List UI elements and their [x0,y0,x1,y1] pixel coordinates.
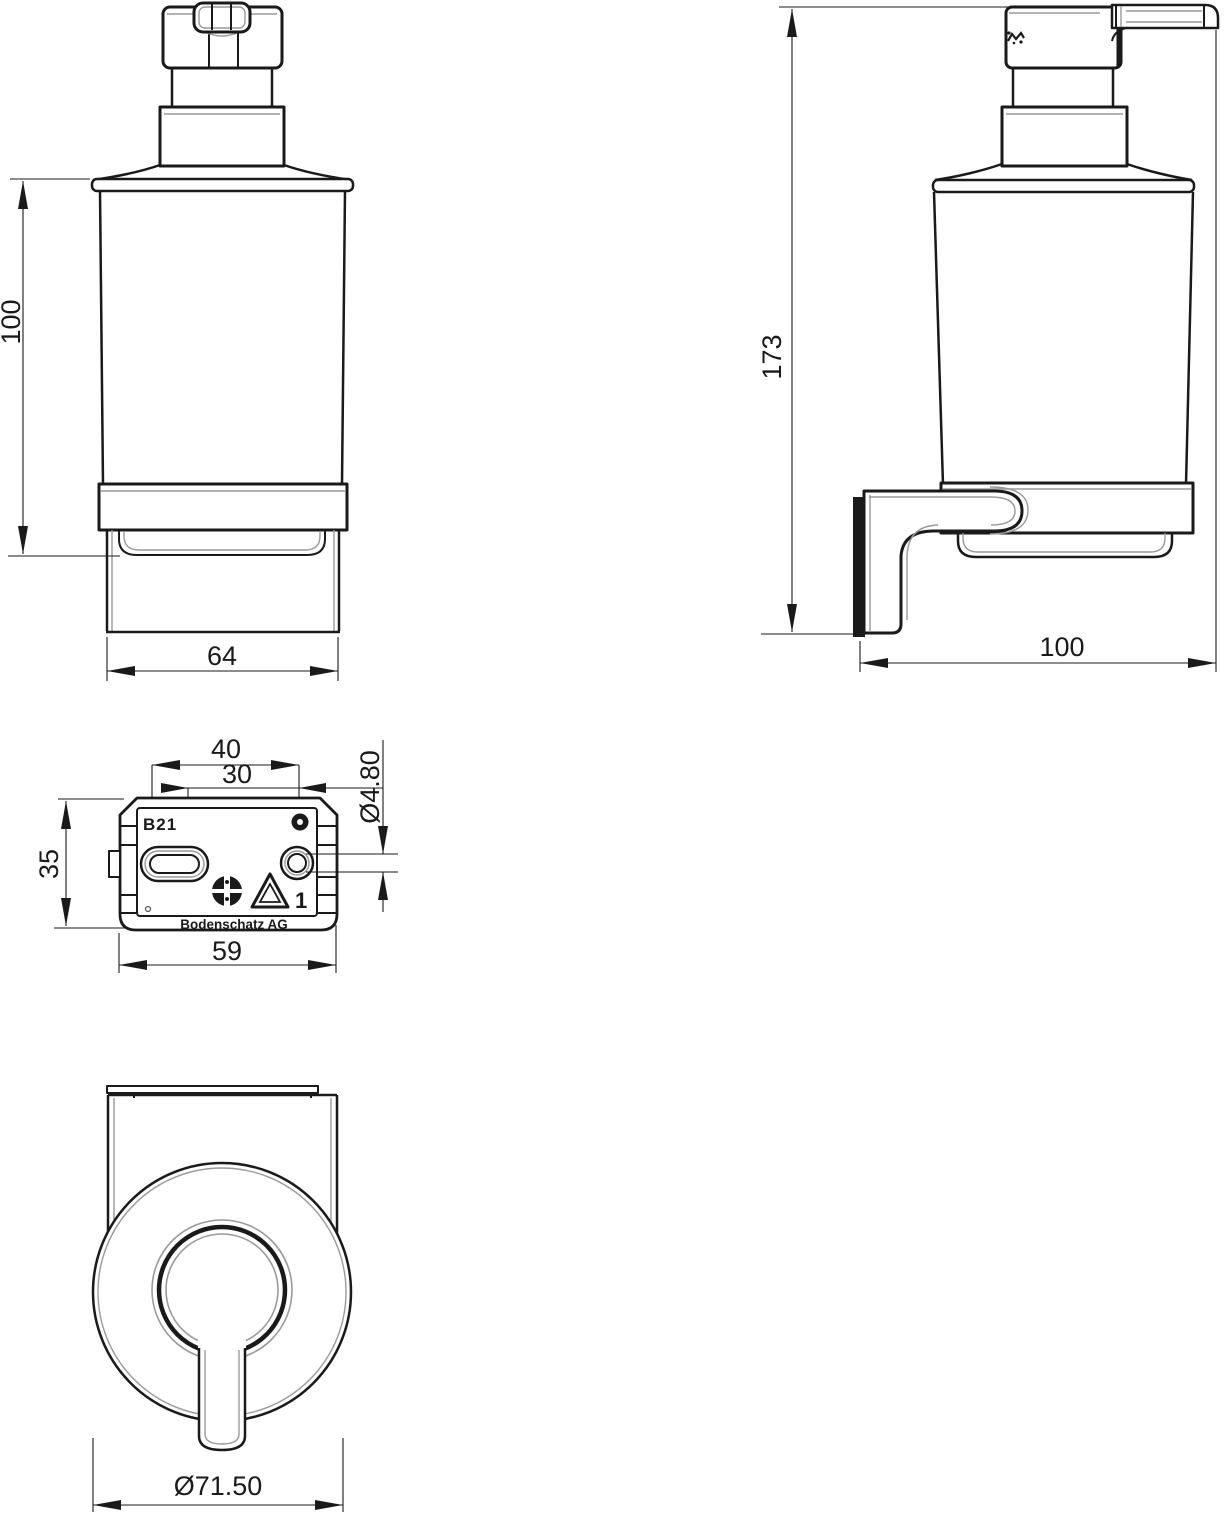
cert-mark-icon [212,876,242,906]
bracket-hole-diameter-label: Ø4.80 [355,750,385,824]
bracket-left-tab [109,851,120,877]
bottom-diameter-dim-label: Ø71.50 [174,1471,263,1501]
side-depth-dim-label: 100 [1039,632,1084,662]
bracket-brand-label: Bodenschatz AG [180,917,288,932]
front-height-dim-label: 100 [0,299,26,344]
bracket-model-label: B21 [143,815,177,834]
bracket-material-label: 1 [295,888,307,913]
technical-drawing-page: 100 64 [0,0,1224,1517]
front-pump-collar [160,107,284,166]
front-pump [160,3,284,166]
front-pump-neck [172,68,272,107]
side-height-dim-label: 173 [757,334,787,379]
mounting-hole [281,847,313,879]
front-spout-nozzle [194,3,250,32]
bracket-height-dim-label: 35 [34,849,64,879]
side-pump-neck [1013,68,1113,107]
mounting-slot [141,847,208,881]
bracket-slot-spacing-label: 30 [222,759,252,789]
pin-marker-icon [292,814,309,831]
bracket-width-dim-label: 59 [212,936,242,966]
front-bottle-shoulder [92,179,353,191]
side-pump-collar [1002,107,1127,166]
front-width-dim-label: 64 [207,641,237,671]
side-bottle-shoulder [933,180,1194,192]
bottom-wall-plate-edge [107,1086,318,1093]
technical-drawing: 100 64 [0,0,1224,1517]
